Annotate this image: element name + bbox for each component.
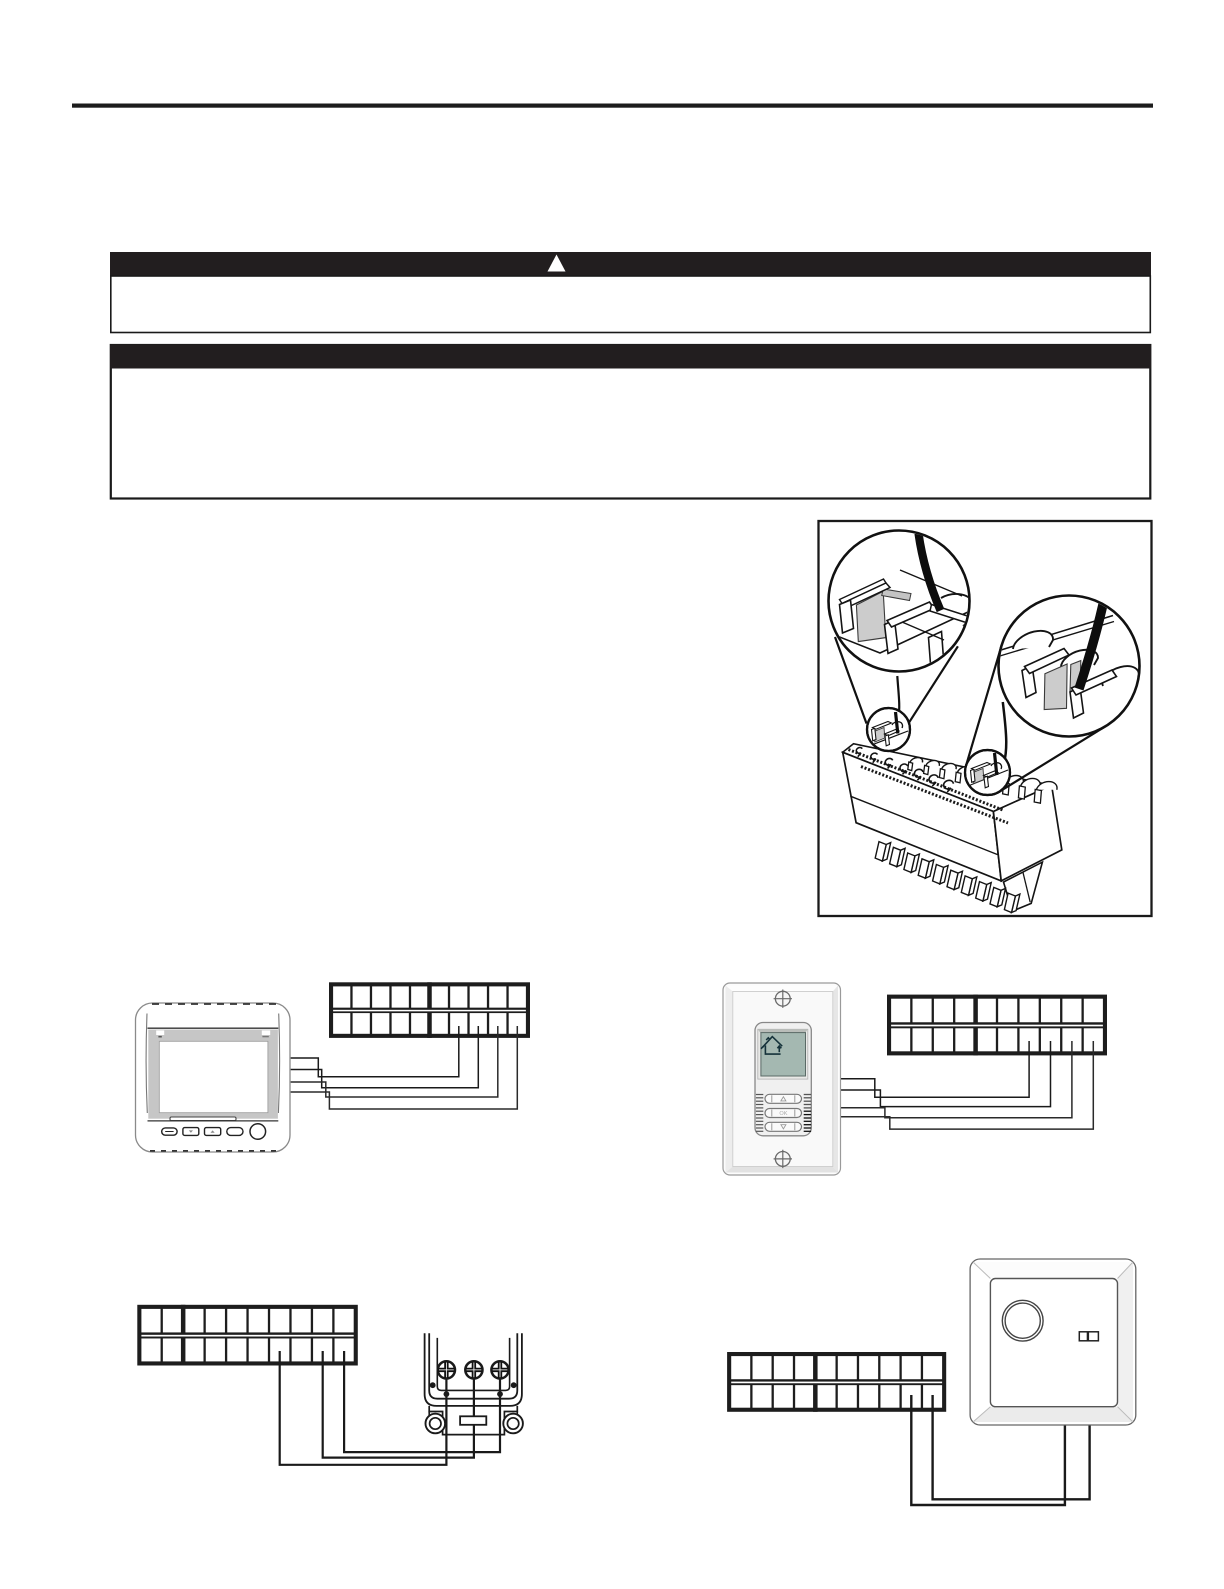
svg-text:OK: OK bbox=[779, 1111, 787, 1117]
